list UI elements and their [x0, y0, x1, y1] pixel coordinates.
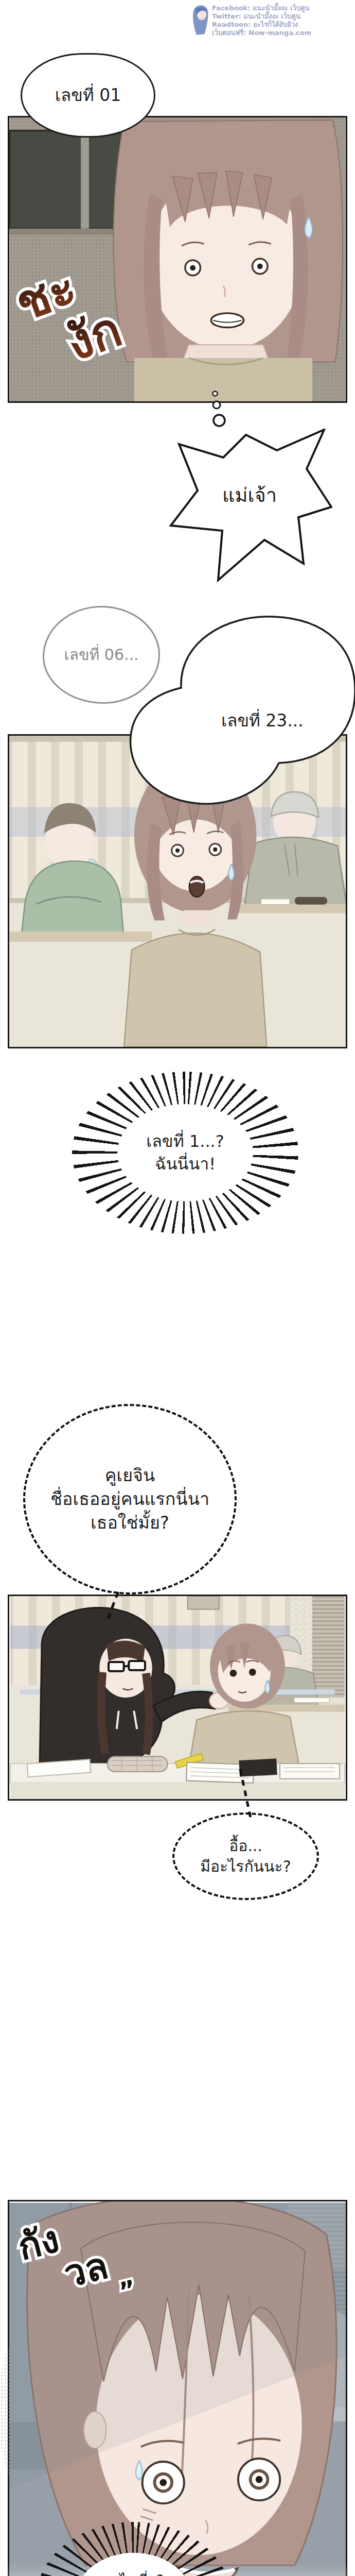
- sfx-worry-b: วล: [60, 2243, 112, 2296]
- watermark-line: Readtoon: อะไรก็ได้งับอ้วง: [212, 21, 311, 29]
- sfx-worry-marks: ”: [116, 2274, 139, 2306]
- murmur-line1: อื้อ...: [229, 1836, 262, 1857]
- burst2-line1: อะไรเนี่ย?: [104, 2571, 164, 2576]
- speech-bubble-number-23-text: เลขที่ 23...: [221, 707, 345, 734]
- burst-bubble-2-text: อะไรเนี่ย? ฉันเขียนอะไรผิด รึเปล่า?: [36, 2522, 232, 2576]
- watermark-line: Twitter: แนะนำมั้งงะ เว็บตูน: [212, 12, 311, 21]
- murmur-bubble: อื้อ... มีอะไรกันนะ?: [172, 1812, 319, 1900]
- sfx-worry: กัง วล ”: [11, 2206, 161, 2350]
- translator-avatar-icon: [191, 4, 209, 36]
- question-line3: เธอใช่มั้ย?: [91, 1511, 169, 1535]
- watermark-line: Facebook: แนะนำมั้งงะ เว็บตูน: [212, 4, 311, 12]
- panel-1-shocked-girl: ชะ งัก: [8, 116, 347, 403]
- thought-dots: [206, 389, 237, 431]
- webtoon-strip: Facebook: แนะนำมั้งงะ เว็บตูน Twitter: แ…: [0, 0, 355, 2576]
- question-bubble-tail: [98, 1591, 129, 1627]
- translator-watermark-top: Facebook: แนะนำมั้งงะ เว็บตูน Twitter: แ…: [191, 4, 352, 37]
- panel-1-art: ชะ งัก: [9, 117, 346, 401]
- burst1-line1: เลขที่ 1...?: [146, 1130, 224, 1153]
- burst1-line2: ฉันนี่นา!: [155, 1153, 216, 1175]
- speech-bubble-number-01: เลขที่ 01: [21, 53, 155, 138]
- murmur-line2: มีอะไรกันนะ?: [200, 1856, 291, 1877]
- shock-bubble-text: แม่เจ้า: [185, 479, 314, 511]
- question-line1: คูเยจิน: [105, 1464, 155, 1487]
- murmur-bubble-tail: [234, 1768, 260, 1820]
- panel-3-art: [9, 1596, 346, 1799]
- question-line2: ชื่อเธออยู่คนแรกนี่นา: [50, 1487, 209, 1511]
- bubble-text: เลขที่ 01: [55, 84, 121, 107]
- panel-3-shoulder-tap: [8, 1595, 347, 1801]
- sfx-worry-a: กัง: [13, 2217, 63, 2269]
- question-bubble: คูเยจิน ชื่อเธออยู่คนแรกนี่นา เธอใช่มั้ย…: [23, 1404, 237, 1595]
- watermark-line: เว็บตอนฟรี: Now-manga.com: [212, 29, 311, 37]
- burst-bubble-1-text: เลขที่ 1...? ฉันนี่นา!: [72, 1072, 298, 1234]
